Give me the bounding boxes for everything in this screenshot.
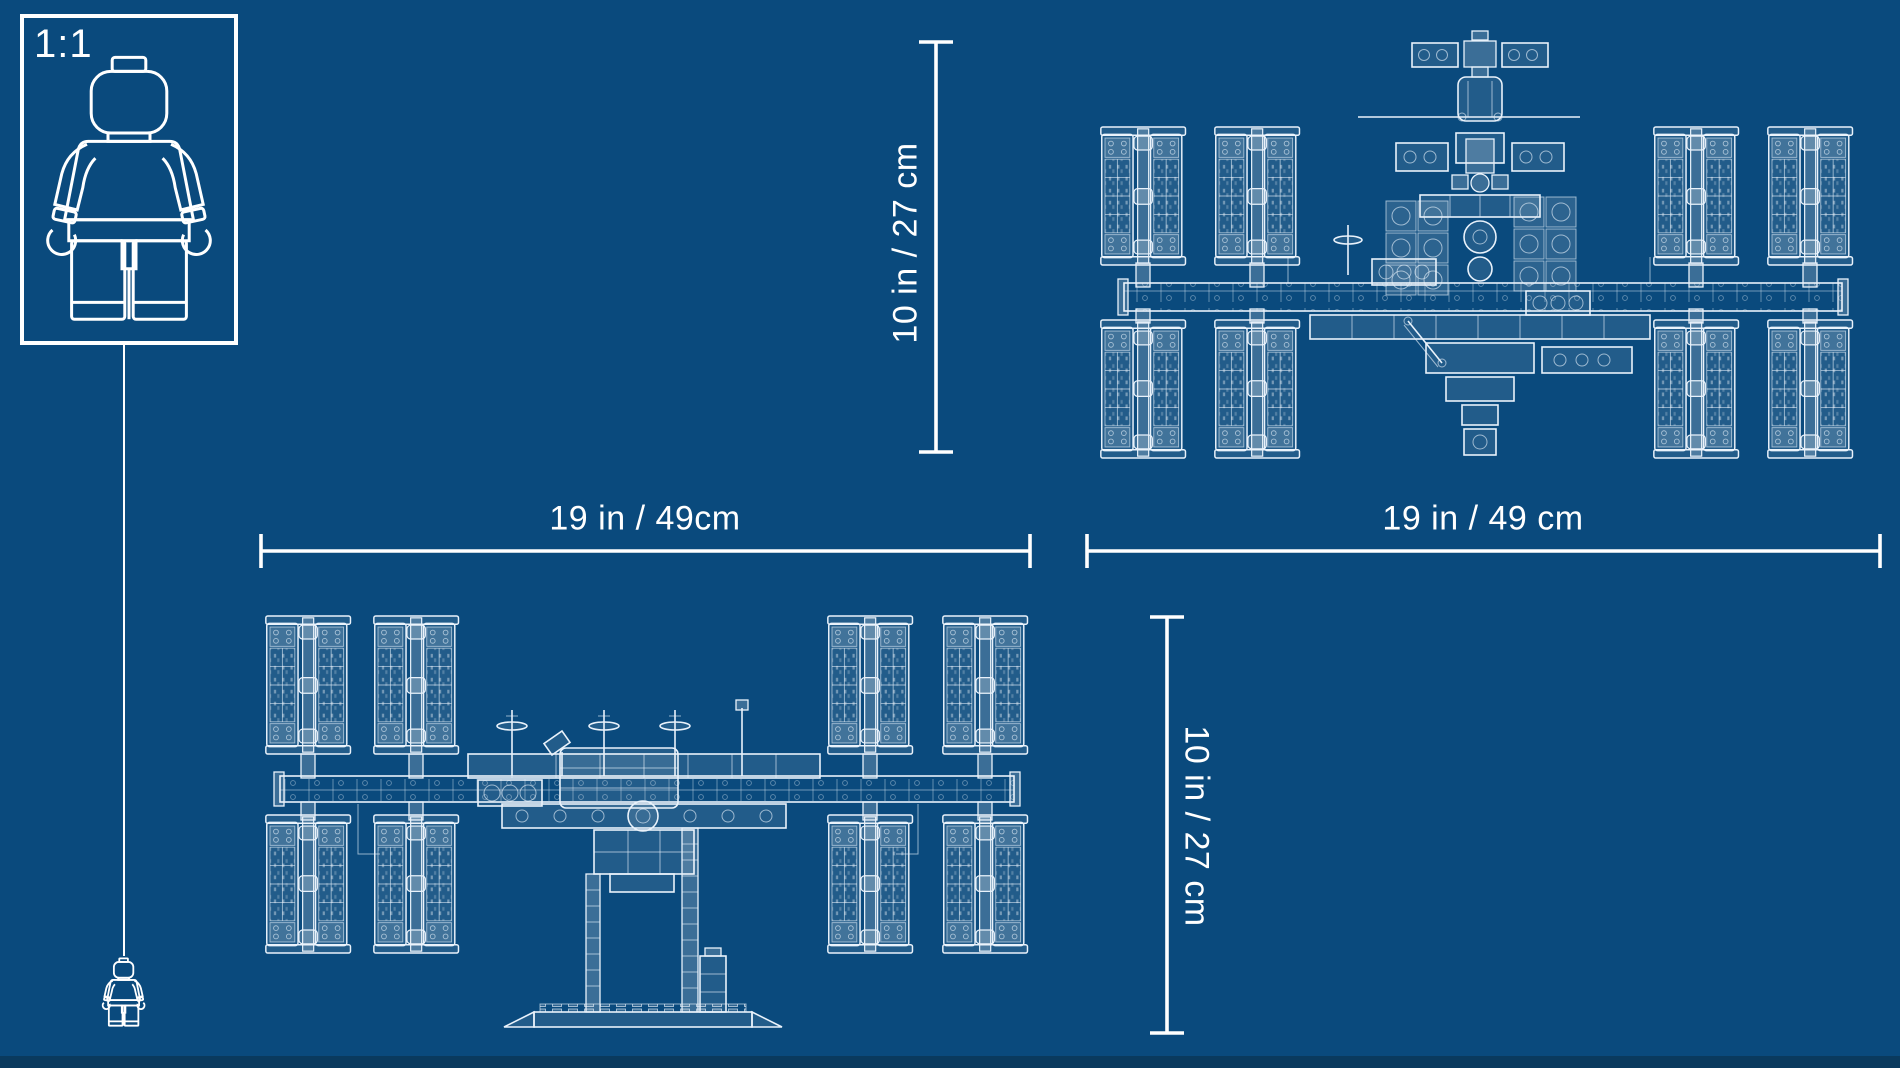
blueprint-page: 1:1 10 in / 27 cm 19 in / 49cm 19 in / 4… — [0, 0, 1900, 1068]
scale-reference — [22, 16, 236, 1026]
dimension-front-view-width — [261, 534, 1030, 568]
minifig-small-icon — [102, 958, 145, 1025]
truss — [1118, 279, 1848, 315]
blueprint-art — [0, 0, 1900, 1068]
minifig-large-icon — [45, 57, 213, 319]
scale-ratio-label: 1:1 — [34, 22, 93, 67]
top-view-height-label: 10 in / 27 cm — [887, 142, 926, 343]
front-view-width-label: 19 in / 49cm — [549, 500, 740, 539]
iss-top-view-drawing — [1101, 31, 1853, 458]
radiator-grid-right — [1514, 197, 1576, 291]
top-view-width-label: 19 in / 49 cm — [1382, 500, 1583, 539]
front-view-height-label: 10 in / 27 cm — [1177, 725, 1216, 926]
bottom-edge-strip — [0, 1056, 1900, 1068]
dimension-top-view-width — [1087, 534, 1880, 568]
core-modules — [1310, 31, 1650, 455]
iss-front-view-drawing — [266, 616, 1028, 1027]
stand-tower — [700, 948, 726, 1012]
